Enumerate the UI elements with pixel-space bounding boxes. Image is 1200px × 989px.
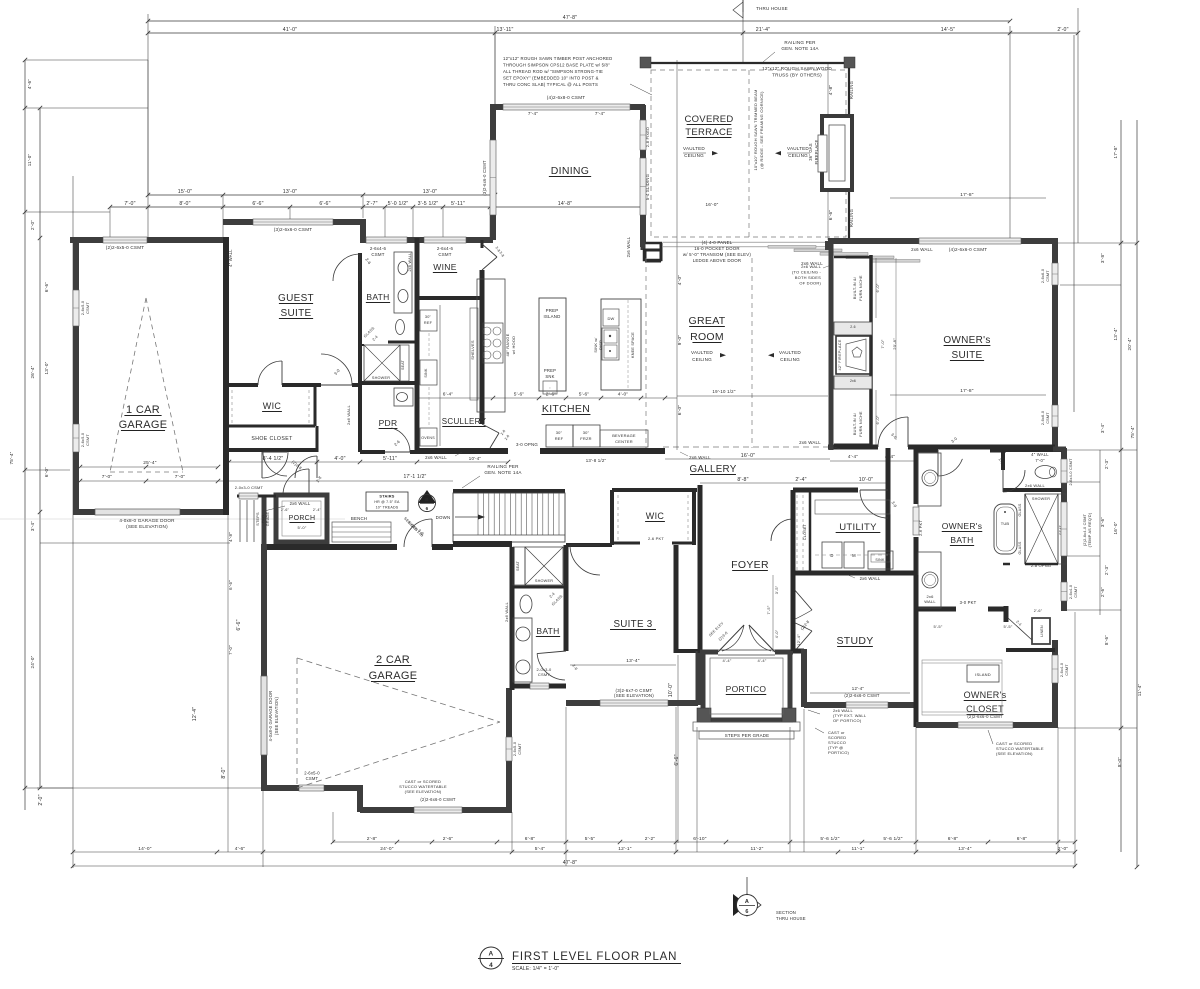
svg-text:GLASS: GLASS [1018,503,1022,516]
svg-text:2'-3": 2'-3" [1104,459,1109,469]
svg-text:BUILT-IN &/: BUILT-IN &/ [853,276,857,299]
svg-text:24'-0": 24'-0" [30,655,35,668]
svg-text:CSMT: CSMT [518,743,522,755]
svg-text:SHOE CLOSET: SHOE CLOSET [251,436,293,442]
svg-text:20'-8": 20'-8" [892,338,897,350]
svg-text:24'-0": 24'-0" [380,846,394,852]
svg-text:7'-0": 7'-0" [228,645,233,655]
svg-text:GALLERY: GALLERY [689,464,736,475]
svg-text:11'-0": 11'-0" [27,154,32,167]
svg-text:14'-8": 14'-8" [558,201,572,207]
svg-text:5'-11": 5'-11" [451,201,465,207]
svg-text:PREP: PREP [546,308,559,313]
svg-text:SHELVES: SHELVES [470,340,475,360]
svg-text:GEN. NOTE 14A: GEN. NOTE 14A [484,470,522,475]
svg-text:D: D [830,553,833,558]
svg-text:GRADE: GRADE [266,511,270,526]
svg-text:BOTH SIDES: BOTH SIDES [795,275,821,280]
svg-text:6'-0": 6'-0" [44,467,49,477]
svg-text:2-8 FIXED: 2-8 FIXED [645,127,650,147]
svg-text:36" GAS: 36" GAS [808,143,813,161]
svg-text:CEILING: CEILING [684,153,704,158]
svg-text:(@ RIDGE - SEE FRAMING CORNICE: (@ RIDGE - SEE FRAMING CORNICE) [759,91,764,169]
svg-text:CENTER: CENTER [615,439,633,444]
svg-text:THRU HOUSE: THRU HOUSE [756,6,788,11]
svg-text:M: M [852,553,856,558]
svg-text:OWNER's: OWNER's [943,335,990,346]
svg-text:13'-11": 13'-11" [496,27,513,33]
svg-text:7'-0": 7'-0" [1035,458,1045,463]
svg-text:2 CAR: 2 CAR [376,654,410,666]
svg-text:8'-0": 8'-0" [1117,757,1122,767]
svg-text:3'-5": 3'-5" [775,585,779,594]
svg-text:47'-8": 47'-8" [563,15,577,21]
svg-text:VAULTED: VAULTED [691,350,713,355]
svg-text:FURN NICHE: FURN NICHE [859,411,863,437]
svg-text:THRU CONC SLAB) TYPICAL @ ALL: THRU CONC SLAB) TYPICAL @ ALL POSTS [503,82,598,87]
svg-text:11'-2": 11'-2" [750,846,763,852]
svg-text:12'-4": 12'-4" [852,686,865,691]
svg-text:7'-0": 7'-0" [124,201,135,207]
svg-text:30": 30" [583,430,590,435]
svg-text:7'-4": 7'-4" [595,111,605,116]
svg-text:14'-5": 14'-5" [941,27,955,33]
svg-text:2x6 WALL: 2x6 WALL [290,501,311,506]
svg-text:(3)2-6x6-0 CSMT: (3)2-6x6-0 CSMT [274,227,312,232]
svg-text:75'-4": 75'-4" [1130,425,1135,438]
svg-text:6'-6": 6'-6" [674,754,680,765]
svg-text:7'-4": 7'-4" [528,111,538,116]
svg-text:13'-4": 13'-4" [1113,327,1118,340]
svg-text:2-6x4-0 CSMT: 2-6x4-0 CSMT [1069,458,1073,486]
svg-text:13'-8 1/2": 13'-8 1/2" [586,458,607,463]
svg-text:7'-0": 7'-0" [175,474,186,480]
svg-text:4'-0": 4'-0" [677,275,683,286]
svg-text:13'-4": 13'-4" [626,658,640,664]
svg-text:PDR: PDR [379,418,398,428]
svg-text:SNK: SNK [545,374,554,379]
svg-text:13'-0": 13'-0" [423,189,437,195]
svg-text:BUILT-IN &/: BUILT-IN &/ [853,412,857,435]
svg-text:(4) 4-0 PANEL: (4) 4-0 PANEL [702,240,733,245]
svg-text:GUEST: GUEST [278,293,314,304]
svg-text:SUITE: SUITE [952,350,983,361]
svg-text:DW: DW [607,316,614,321]
svg-text:2'-6": 2'-6" [1100,587,1105,597]
svg-text:(TO CEILING -: (TO CEILING - [792,270,821,275]
svg-text:SHOWER: SHOWER [372,376,390,380]
svg-text:w/ 5'-0" TRANSOM (SEE ELEV): w/ 5'-0" TRANSOM (SEE ELEV) [683,252,752,257]
svg-text:VAULTED: VAULTED [683,146,705,151]
svg-text:WIC: WIC [263,401,282,411]
svg-text:TRUSS (BY OTHERS): TRUSS (BY OTHERS) [772,73,822,78]
svg-text:25'-4": 25'-4" [143,460,157,466]
svg-text:CLOSET: CLOSET [966,704,1004,714]
svg-text:5'-5": 5'-5" [934,624,943,629]
svg-text:STEPS: STEPS [256,512,260,526]
svg-text:2-6x4-6: 2-6x4-6 [437,246,454,251]
svg-text:3'-8": 3'-8" [1100,253,1105,263]
svg-text:RAILING: RAILING [849,81,854,99]
svg-text:75'-4": 75'-4" [9,451,14,464]
svg-text:2-6: 2-6 [850,325,856,329]
svg-text:VAULTED: VAULTED [779,350,801,355]
svg-text:B: B [425,497,429,502]
svg-text:6'-6": 6'-6" [828,210,834,221]
svg-text:BATH: BATH [536,626,559,636]
svg-text:(3)2-6x6-0 CSMT: (3)2-6x6-0 CSMT [482,160,487,196]
svg-text:2-6 PKT: 2-6 PKT [648,536,664,541]
svg-text:REF: REF [424,321,433,325]
svg-text:5'-4": 5'-4" [535,846,546,852]
svg-text:2'-0": 2'-0" [1057,27,1068,33]
svg-text:6: 6 [426,506,429,511]
svg-text:2x6 WALL: 2x6 WALL [346,404,351,424]
svg-text:2x6 WALL: 2x6 WALL [504,601,509,621]
svg-text:5'-6": 5'-6" [514,392,525,398]
svg-text:SECTION: SECTION [776,910,796,915]
svg-text:3'-4": 3'-4" [1100,423,1105,433]
svg-text:7'-5": 7'-5" [766,605,771,614]
svg-text:4'-8": 4'-8" [228,532,233,542]
svg-text:6'-6": 6'-6" [319,201,330,207]
svg-text:OVENS: OVENS [421,436,435,440]
svg-text:12"x12" ROUGH SAWN TIMBER POST: 12"x12" ROUGH SAWN TIMBER POST ANCHORED [503,56,612,61]
svg-text:3'-5 1/2": 3'-5 1/2" [418,201,439,207]
svg-text:26'-4": 26'-4" [30,365,35,378]
svg-text:6'-0": 6'-0" [677,405,683,416]
svg-text:5'-6": 5'-6" [579,392,590,398]
svg-text:(SEE ELEVATION): (SEE ELEVATION) [996,751,1033,756]
svg-text:(2)2-6x6-0 CSMT: (2)2-6x6-0 CSMT [420,797,456,802]
svg-text:2x6 WALL: 2x6 WALL [1025,483,1045,488]
svg-text:VAULTED: VAULTED [787,146,809,151]
svg-text:4: 4 [489,962,493,969]
svg-text:SEAT: SEAT [516,560,520,571]
svg-text:GARAGE: GARAGE [119,419,168,431]
svg-text:2x6 WALL: 2x6 WALL [425,455,447,460]
svg-text:RAILING PER: RAILING PER [487,464,519,469]
svg-text:WIC: WIC [646,511,665,521]
svg-text:4'-4": 4'-4" [848,454,858,459]
svg-text:3-0 PKT: 3-0 PKT [960,600,977,605]
svg-text:5'-11": 5'-11" [383,456,397,462]
svg-text:8'-0": 8'-0" [179,201,190,207]
svg-text:RAILING PER: RAILING PER [784,40,816,45]
svg-text:PER: PER [261,515,265,523]
svg-text:BATH: BATH [950,535,973,545]
svg-text:10'-4": 10'-4" [469,456,482,461]
svg-text:PREP: PREP [544,368,556,373]
svg-text:UTILITY: UTILITY [839,522,877,533]
svg-text:30": 30" [556,430,563,435]
svg-text:17'-1 1/2": 17'-1 1/2" [403,474,426,480]
svg-text:12'-4": 12'-4" [192,707,198,721]
svg-text:2-6x4-0: 2-6x4-0 [1060,663,1064,677]
svg-text:THRU HOUSE: THRU HOUSE [776,916,806,921]
svg-text:6'-6": 6'-6" [252,201,263,207]
svg-text:w/ HOOD: w/ HOOD [511,336,516,355]
svg-text:SUITE 3: SUITE 3 [613,619,652,630]
svg-text:6'-10": 6'-10" [693,836,707,842]
svg-text:19'-10 1/2": 19'-10 1/2" [712,389,735,394]
svg-text:2-6x4-0: 2-6x4-0 [1069,585,1073,599]
svg-text:WALL: WALL [924,599,936,604]
svg-text:2'-7": 2'-7" [366,201,377,207]
svg-text:2'-3": 2'-3" [1104,565,1109,575]
svg-text:2x6 WALL: 2x6 WALL [911,247,933,252]
svg-text:(2)2-6x5-0 CSMT: (2)2-6x5-0 CSMT [106,245,144,250]
svg-text:CSMT: CSMT [371,252,384,257]
svg-text:STAIRS: STAIRS [379,494,394,499]
svg-text:PORTICO): PORTICO) [828,750,850,755]
svg-text:GLASS: GLASS [1018,541,1022,554]
svg-text:FURN NICHE: FURN NICHE [859,275,863,301]
svg-text:CSMT: CSMT [1046,270,1050,282]
svg-text:16'-0": 16'-0" [706,202,719,207]
svg-text:(2)2-6x6-0 CSMT: (2)2-6x6-0 CSMT [844,693,880,698]
svg-text:SUITE: SUITE [281,308,312,319]
svg-text:8'-4 1/2": 8'-4 1/2" [263,456,284,462]
svg-text:FIREPLACE: FIREPLACE [814,139,819,164]
svg-text:CSMT: CSMT [1074,586,1078,598]
svg-text:2-6x6-0: 2-6x6-0 [1041,269,1045,283]
svg-text:ALL THREAD ROD w/ “SIMPSON STR: ALL THREAD ROD w/ “SIMPSON STRONG-TIE [503,69,603,74]
svg-text:9'-0": 9'-0" [677,335,683,346]
svg-text:17'-8": 17'-8" [960,192,974,198]
svg-text:SCULLERY: SCULLERY [442,417,487,426]
svg-text:(SEE ELEVATION): (SEE ELEVATION) [614,693,654,698]
svg-text:2-6x4-6: 2-6x4-6 [370,246,387,251]
svg-text:21'-4": 21'-4" [756,27,770,33]
svg-text:ROOM: ROOM [690,331,724,343]
svg-text:THROUGH SIMPSON CPS12 BASE PLA: THROUGH SIMPSON CPS12 BASE PLATE w/ 5/8" [503,63,610,68]
svg-text:10'-0": 10'-0" [668,683,674,697]
svg-text:7'-0": 7'-0" [102,474,113,480]
svg-text:CSMT: CSMT [1046,412,1050,424]
svg-text:2'-0": 2'-0" [38,794,44,805]
svg-text:5'-0 1/2": 5'-0 1/2" [388,201,409,207]
svg-text:TUB: TUB [1001,521,1010,526]
svg-text:SCALE: 1/4" = 1'-0": SCALE: 1/4" = 1'-0" [512,966,559,972]
svg-text:(TEMP AS REQ'D): (TEMP AS REQ'D) [1088,512,1092,547]
svg-text:CEILING: CEILING [788,153,808,158]
svg-text:6'-8": 6'-8" [948,836,959,842]
svg-text:4'-8": 4'-8" [828,85,834,96]
svg-text:WINE: WINE [433,262,456,272]
svg-text:(4)2-6x8-0 CSMT: (4)2-6x8-0 CSMT [547,95,585,100]
svg-text:CSMT: CSMT [1065,664,1069,676]
svg-text:BATH: BATH [366,292,389,302]
svg-text:8'-8": 8'-8" [737,477,748,483]
svg-text:11'-4": 11'-4" [1137,684,1142,697]
svg-text:47'-8": 47'-8" [563,860,577,866]
svg-text:BEVERAGE: BEVERAGE [612,433,636,438]
svg-text:SET EPOXY” (EMBEDDED 10" INTO: SET EPOXY” (EMBEDDED 10" INTO POST & [503,76,599,81]
svg-text:2'-8": 2'-8" [367,836,378,842]
svg-text:PORCH: PORCH [289,515,316,522]
svg-text:LINEN: LINEN [1040,625,1044,637]
svg-text:1 CAR: 1 CAR [126,404,160,416]
svg-text:12'-1": 12'-1" [618,846,632,852]
svg-text:2'-4": 2'-4" [313,508,322,512]
svg-text:2x6: 2x6 [850,379,856,383]
svg-text:6'-6": 6'-6" [228,580,233,590]
svg-text:A: A [745,899,749,905]
svg-text:12'-4": 12'-4" [796,634,801,646]
svg-text:6'-8": 6'-8" [525,836,536,842]
svg-text:6: 6 [745,909,748,915]
svg-text:DOWN: DOWN [436,515,451,520]
svg-text:SHOWER: SHOWER [535,579,553,583]
svg-text:8'-0": 8'-0" [221,767,227,778]
svg-text:SEAT: SEAT [401,359,405,370]
svg-text:6'-6": 6'-6" [236,619,242,630]
svg-text:16-0 POCKET DOOR: 16-0 POCKET DOOR [694,246,740,251]
svg-text:4" WALL: 4" WALL [1031,452,1049,457]
svg-text:5'-6 1/2": 5'-6 1/2" [820,836,839,842]
svg-text:7'-0": 7'-0" [880,339,885,348]
svg-text:FOYER: FOYER [731,559,769,571]
svg-text:41'-0": 41'-0" [283,27,297,33]
svg-text:LEDGE ABOVE DOOR: LEDGE ABOVE DOOR [693,258,742,263]
svg-text:16'-0": 16'-0" [1113,521,1118,534]
svg-text:3-0 OPNG: 3-0 OPNG [516,442,538,447]
svg-text:6'-0": 6'-0" [875,415,880,424]
svg-text:GEN. NOTE 14A: GEN. NOTE 14A [781,46,819,51]
svg-text:OF PORTICO): OF PORTICO) [833,718,862,723]
svg-text:PORTICO: PORTICO [726,684,767,694]
svg-text:5-4 SLIDING: 5-4 SLIDING [645,174,650,200]
svg-text:RAILING: RAILING [849,209,854,227]
svg-text:11'-1": 11'-1" [851,846,864,852]
svg-text:2x6 WALL: 2x6 WALL [408,253,412,272]
svg-text:CSMT: CSMT [85,434,90,446]
svg-text:10" TREADS: 10" TREADS [376,506,399,510]
svg-text:8'-6": 8'-6" [1104,635,1109,645]
svg-text:20'-4": 20'-4" [1127,337,1132,350]
svg-text:STUDY: STUDY [836,635,873,647]
svg-text:3'-4": 3'-4" [30,521,35,531]
svg-text:SINK w/: SINK w/ [594,337,598,353]
svg-text:2'-2": 2'-2" [645,836,656,842]
svg-text:2'-6": 2'-6" [1034,609,1043,613]
svg-text:42" FIREPLACE: 42" FIREPLACE [837,339,842,370]
svg-text:(SEE ELEVATION): (SEE ELEVATION) [274,696,279,735]
svg-text:COVERED: COVERED [684,114,733,125]
svg-text:ISLAND: ISLAND [975,672,991,677]
svg-text:REF: REF [555,436,564,441]
svg-text:4'-6": 4'-6" [235,846,246,852]
svg-text:DINING: DINING [551,165,590,177]
svg-text:(SEE ELEVATION): (SEE ELEVATION) [126,524,168,529]
svg-text:2-6x6-0: 2-6x6-0 [1041,411,1045,425]
svg-text:4'-4": 4'-4" [758,658,767,663]
svg-text:13'-0": 13'-0" [44,361,49,374]
svg-text:CSMT: CSMT [306,776,319,781]
svg-text:3'-6": 3'-6" [1100,517,1105,527]
svg-text:HR @ 7.5" EA: HR @ 7.5" EA [374,500,400,504]
svg-text:4'-6": 4'-6" [27,79,32,89]
svg-text:SINK: SINK [875,558,885,562]
svg-text:2x6 WALL: 2x6 WALL [689,455,711,460]
svg-text:2'-6": 2'-6" [546,392,557,398]
svg-text:CSMT: CSMT [438,252,451,257]
svg-text:5'-5": 5'-5" [585,836,596,842]
svg-text:A: A [489,951,494,958]
svg-text:(4)2-6x6-0 CSMT: (4)2-6x6-0 CSMT [949,247,987,252]
svg-text:SINK: SINK [424,368,428,378]
svg-text:KNEE SPACE: KNEE SPACE [631,332,635,358]
svg-text:15'-0": 15'-0" [178,189,192,195]
svg-text:17'-8": 17'-8" [1113,145,1118,158]
svg-text:30": 30" [425,315,432,319]
svg-text:2-0x3-0 CSMT: 2-0x3-0 CSMT [235,485,264,490]
svg-text:(SEE ELEVATION): (SEE ELEVATION) [405,789,442,794]
svg-text:10"x10" ROUGH SAWN TRIMMED BEA: 10"x10" ROUGH SAWN TRIMMED BEAM [753,89,758,170]
svg-text:5'-6 1/2": 5'-6 1/2" [883,836,902,842]
svg-text:DISP: DISP [599,340,603,350]
svg-text:6'-0": 6'-0" [875,283,880,292]
svg-text:2'-0": 2'-0" [30,220,35,230]
svg-text:48" RANGE: 48" RANGE [505,333,510,356]
svg-text:2-6x5-0: 2-6x5-0 [513,742,517,756]
svg-text:4'-0": 4'-0" [334,456,345,462]
svg-text:6'-6": 6'-6" [44,282,49,292]
svg-text:14'-0": 14'-0" [138,846,152,852]
svg-text:4-0x8-0 GARAGE DOOR: 4-0x8-0 GARAGE DOOR [268,691,273,742]
svg-text:KITCHEN: KITCHEN [542,403,590,415]
svg-text:GREAT: GREAT [689,315,726,327]
svg-text:ISLAND: ISLAND [543,314,560,319]
svg-text:OWNER's: OWNER's [942,521,983,531]
svg-text:BENCH: BENCH [351,516,367,521]
svg-text:GARAGE: GARAGE [369,670,418,682]
svg-text:4-0x8-0 GARAGE DOOR: 4-0x8-0 GARAGE DOOR [119,518,175,523]
svg-text:SHOWER: SHOWER [1032,497,1050,501]
svg-text:CEILING: CEILING [692,357,712,362]
svg-text:2'-6": 2'-6" [443,836,454,842]
svg-text:2-6x5-0: 2-6x5-0 [304,771,320,776]
svg-text:4" WALL: 4" WALL [228,249,233,267]
svg-text:(2)2-6x4-0 CSMT: (2)2-6x4-0 CSMT [1083,513,1087,546]
svg-text:OF DOOR): OF DOOR) [799,281,821,286]
svg-text:2x6 WALL: 2x6 WALL [860,576,881,581]
svg-text:4'-0": 4'-0" [775,629,779,638]
svg-text:STEPS PER GRADE: STEPS PER GRADE [725,733,769,738]
svg-text:CEILING: CEILING [780,357,800,362]
svg-text:2x6 WALL: 2x6 WALL [626,236,631,257]
svg-text:5'-0": 5'-0" [298,525,307,530]
svg-text:CLOSET: CLOSET [803,523,807,540]
svg-text:OWNER's: OWNER's [964,690,1007,700]
svg-text:6'-4": 6'-4" [443,392,454,398]
svg-text:13'-4": 13'-4" [958,846,972,852]
svg-text:5'-5": 5'-5" [1004,624,1013,629]
svg-text:4'-0": 4'-0" [618,392,629,398]
svg-text:10'-0": 10'-0" [859,477,873,483]
svg-text:2x6 WALL: 2x6 WALL [801,264,821,269]
svg-text:13'-0": 13'-0" [283,189,297,195]
svg-text:16'-0": 16'-0" [741,453,755,459]
svg-text:2'-4": 2'-4" [795,477,806,483]
svg-text:6'-8": 6'-8" [1017,836,1028,842]
svg-text:4'-4": 4'-4" [723,658,732,663]
svg-text:TERRACE: TERRACE [685,127,733,138]
svg-text:FIRST LEVEL FLOOR PLAN: FIRST LEVEL FLOOR PLAN [512,951,677,963]
svg-text:2x6 WALL: 2x6 WALL [799,440,821,445]
svg-text:FRZR: FRZR [580,436,591,441]
